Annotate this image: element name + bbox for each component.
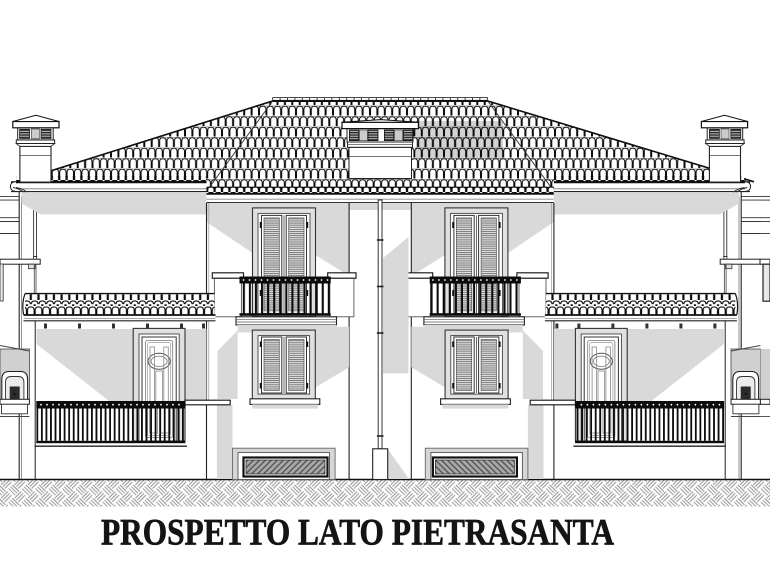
svg-text:PROSPETTO LATO PIETRASANTA: PROSPETTO LATO PIETRASANTA bbox=[101, 513, 614, 554]
